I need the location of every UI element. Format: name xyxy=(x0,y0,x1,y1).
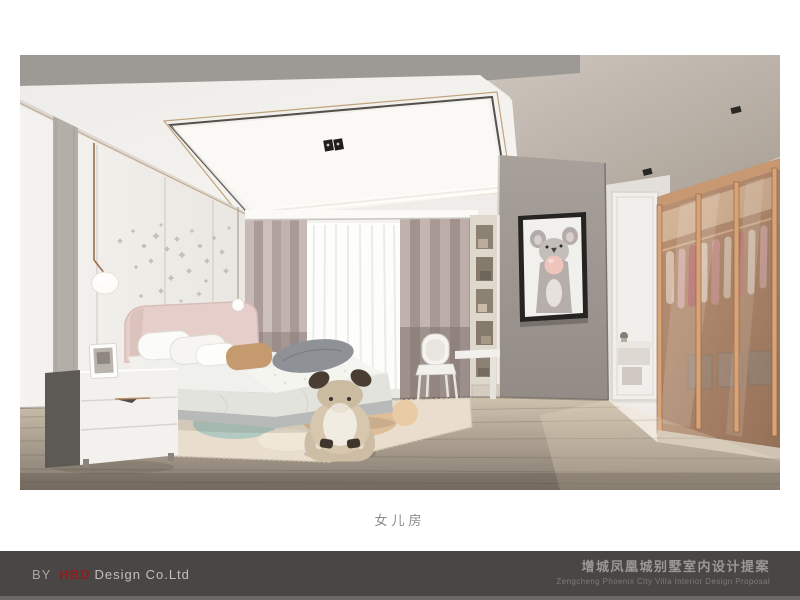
glass-wardrobe xyxy=(657,158,780,461)
rendering-canvas xyxy=(20,55,780,490)
footer-bar: BYHBDDesign Co.Ltd 增城凤凰城别墅室内设计提案 Zengche… xyxy=(0,551,800,600)
company-name: Design Co.Ltd xyxy=(95,567,190,582)
brand-logo: HBD xyxy=(59,567,90,582)
image-caption: 女儿房 xyxy=(0,510,800,529)
photo-frame xyxy=(89,343,118,378)
curtain-right xyxy=(400,218,478,414)
proposal-title-zh: 增城凤凰城别墅室内设计提案 xyxy=(556,559,770,575)
koala-artwork xyxy=(518,212,588,327)
proposal-title: 增城凤凰城别墅室内设计提案 Zengcheng Phoenix City Vil… xyxy=(556,559,770,587)
vanity-stool xyxy=(622,367,642,385)
interior-rendering xyxy=(20,55,780,490)
proposal-title-en: Zengcheng Phoenix City Villa Interior De… xyxy=(556,577,770,587)
by-label: BY xyxy=(32,567,51,582)
company-credit: BYHBDDesign Co.Ltd xyxy=(32,567,190,582)
